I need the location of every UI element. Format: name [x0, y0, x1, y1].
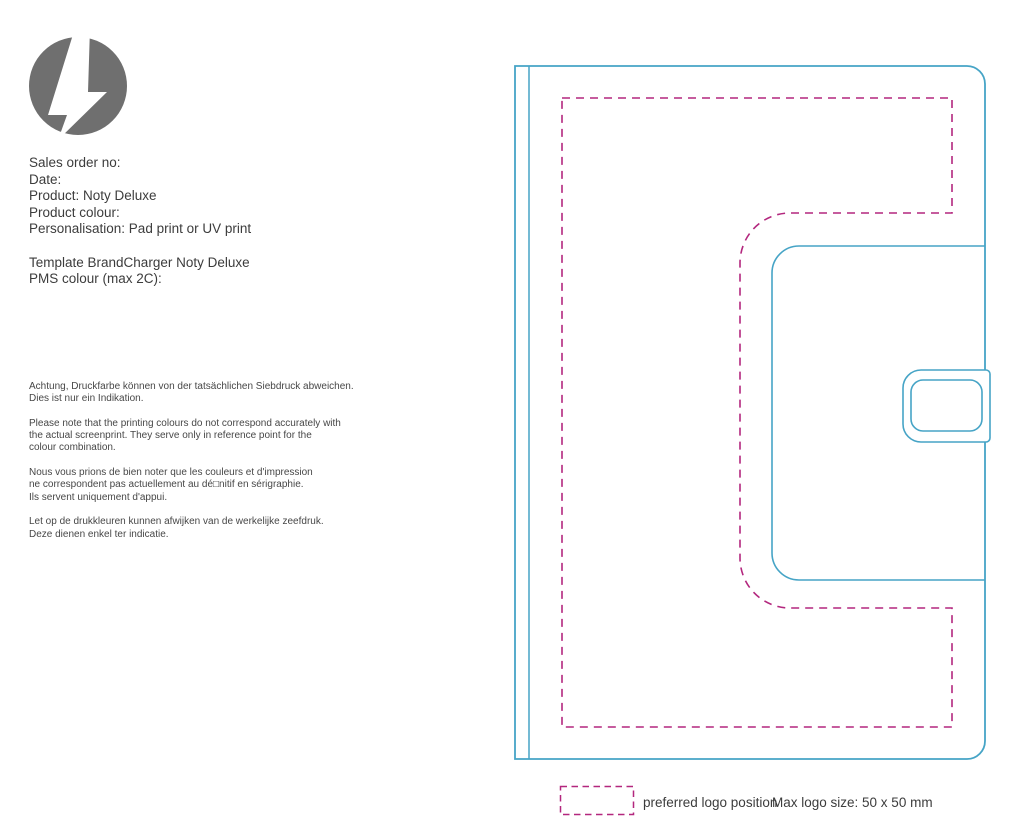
legend-max-logo-size: Max logo size: 50 x 50 mm: [772, 795, 933, 810]
order-info-block: Sales order no: Date: Product: Noty Delu…: [29, 155, 251, 288]
product-line: Product: Noty Deluxe: [29, 188, 251, 205]
notebook-template-drawing: [500, 50, 1024, 774]
disclaimer-dutch: Let op de drukkleuren kunnen afwijken va…: [29, 516, 429, 541]
disclaimer-english: Please note that the printing colours do…: [29, 418, 429, 455]
disclaimer-german: Achtung, Druckfarbe können von der tatsä…: [29, 381, 429, 406]
brand-logo: [26, 24, 130, 144]
date-line: Date:: [29, 172, 251, 189]
pms-colour-line: PMS colour (max 2C):: [29, 271, 251, 288]
legend-label: preferred logo position: [643, 795, 777, 810]
personalisation-line: Personalisation: Pad print or UV print: [29, 221, 251, 238]
disclaimer-french: Nous vous prions de bien noter que les c…: [29, 467, 429, 504]
product-colour-line: Product colour:: [29, 205, 251, 222]
logo-position-swatch: [559, 785, 637, 817]
dashed-rectangle-icon: [561, 787, 634, 815]
disclaimer-block: Achtung, Druckfarbe können von der tatsä…: [29, 381, 429, 553]
print-template-page: Sales order no: Date: Product: Noty Delu…: [0, 0, 1024, 837]
template-name-line: Template BrandCharger Noty Deluxe: [29, 255, 251, 272]
sales-order-line: Sales order no:: [29, 155, 251, 172]
